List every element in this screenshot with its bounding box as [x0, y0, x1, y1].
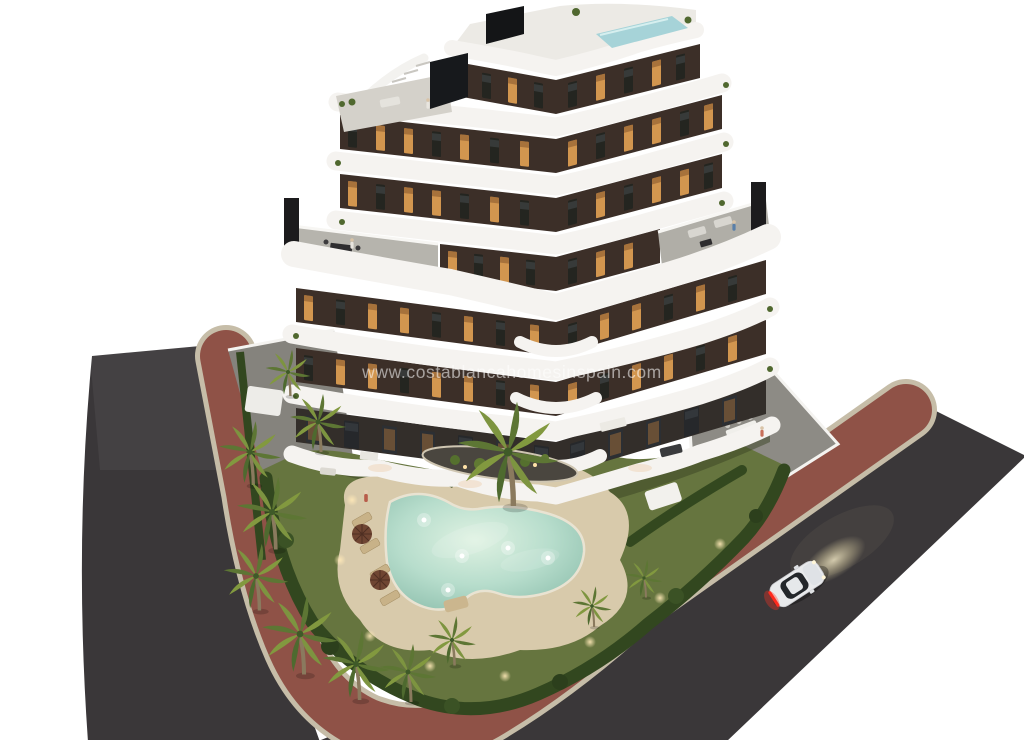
window [624, 184, 633, 211]
person [732, 220, 736, 231]
plant [339, 101, 345, 107]
path-light [654, 592, 666, 604]
window [664, 294, 673, 322]
plant [767, 366, 773, 372]
window [490, 138, 499, 164]
window [596, 74, 605, 101]
window [508, 77, 517, 104]
window [568, 139, 577, 166]
plant [767, 306, 773, 312]
person-head [350, 238, 354, 242]
person-head [364, 490, 368, 494]
person-head [732, 220, 736, 224]
path-light [714, 538, 726, 550]
glass-door [646, 417, 661, 448]
window [520, 200, 529, 226]
pool-light [422, 518, 427, 523]
person-body [364, 494, 368, 502]
scene-svg: www.costablancahomesinspain.com [0, 0, 1024, 740]
window [526, 259, 535, 285]
plant [719, 200, 725, 206]
window [652, 59, 661, 86]
plant [339, 219, 345, 225]
window [568, 81, 577, 108]
window [676, 53, 685, 80]
window [728, 335, 737, 363]
person-body [732, 224, 735, 231]
window [624, 67, 633, 94]
window [534, 82, 543, 109]
roof-plant [572, 8, 580, 16]
window [482, 73, 491, 100]
window [304, 355, 313, 381]
pool-light [506, 546, 511, 551]
window [624, 125, 633, 152]
window [520, 141, 529, 167]
person [760, 426, 764, 437]
window [496, 320, 505, 346]
window [336, 359, 345, 385]
terrace-glow [458, 480, 482, 488]
window [336, 299, 345, 325]
window [496, 380, 505, 406]
bed-light [463, 465, 467, 469]
window [376, 184, 385, 210]
person [350, 238, 354, 249]
pool-light [460, 554, 465, 559]
window [348, 181, 357, 207]
bush [444, 698, 460, 714]
window [596, 191, 605, 218]
window [568, 257, 577, 284]
parasol [352, 524, 372, 544]
terrace-chair [324, 240, 329, 245]
window [432, 190, 441, 216]
window [728, 275, 737, 303]
person-body [760, 430, 763, 437]
parasol-ribs [352, 524, 372, 544]
person-head [426, 98, 430, 102]
person-head [760, 426, 764, 430]
window [464, 316, 473, 342]
path-light [334, 554, 346, 566]
render-canvas: www.costablancahomesinspain.com [0, 0, 1024, 740]
bush [668, 588, 684, 604]
watermark: www.costablancahomesinspain.com [361, 362, 662, 382]
window [664, 354, 673, 382]
window [596, 132, 605, 159]
glass-door [382, 425, 397, 454]
window [432, 131, 441, 157]
glass-door [608, 428, 623, 459]
parasol-ribs [370, 570, 390, 590]
window [696, 284, 705, 312]
window [304, 295, 313, 321]
window [704, 103, 713, 130]
window [696, 344, 705, 372]
window [432, 312, 441, 338]
window [600, 312, 609, 340]
path-light [584, 636, 596, 648]
window [624, 243, 633, 270]
window [680, 110, 689, 137]
window [376, 125, 385, 151]
person [364, 490, 368, 502]
window [680, 169, 689, 196]
plant [450, 455, 460, 465]
path-light [364, 630, 376, 642]
bush [749, 509, 763, 523]
terrace-plant [349, 99, 356, 106]
window [404, 128, 413, 154]
roof-plant [685, 17, 692, 24]
bush [552, 674, 568, 690]
window [404, 187, 413, 213]
window [490, 197, 499, 223]
window [568, 198, 577, 225]
window [596, 250, 605, 277]
plant [293, 333, 299, 339]
plant [723, 82, 729, 88]
plant [723, 141, 729, 147]
bed-light [533, 463, 537, 467]
terrace-glow [628, 464, 652, 472]
window [460, 193, 469, 219]
person [426, 98, 430, 109]
pool-light [546, 556, 551, 561]
glass-door [344, 420, 359, 449]
window [400, 308, 409, 334]
window [652, 176, 661, 203]
path-light [499, 670, 511, 682]
person-body [426, 102, 429, 109]
window [704, 162, 713, 189]
pool-light [446, 588, 451, 593]
window [652, 117, 661, 144]
glass-door [722, 395, 737, 426]
left-terrace-pergola [244, 386, 283, 417]
glass-door [684, 406, 699, 437]
parasol [370, 570, 390, 590]
terrace-chair [356, 246, 361, 251]
window [500, 257, 509, 283]
path-light [346, 494, 358, 506]
window [632, 303, 641, 331]
window [368, 303, 377, 329]
window [460, 134, 469, 160]
person-body [350, 242, 353, 249]
plant [335, 160, 341, 166]
terrace-glow [368, 464, 392, 472]
